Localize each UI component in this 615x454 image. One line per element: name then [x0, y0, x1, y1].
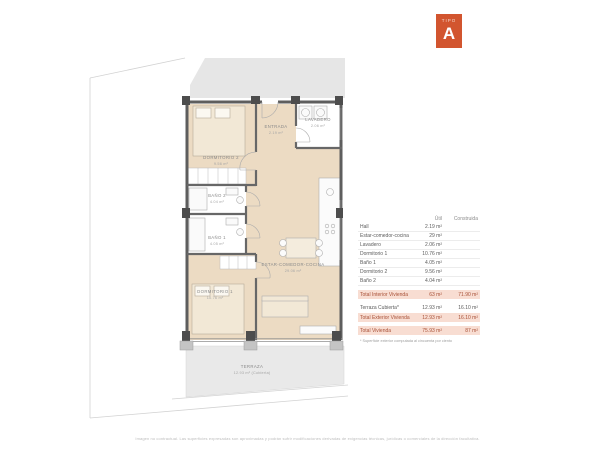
total-label: Total Exterior Vivienda — [360, 315, 412, 321]
total-construida: 71.90 m² — [442, 292, 478, 298]
row-util: 2.19 m² — [412, 224, 442, 230]
table-row: Estar-comedor-cocina 29 m² — [358, 232, 480, 241]
label-entrada: ENTRADA — [265, 124, 288, 129]
page-canvas: TIPO A — [0, 0, 615, 454]
total-label: Total Vivienda — [360, 328, 412, 334]
row-util: 9.56 m² — [412, 269, 442, 275]
row-util: 2.06 m² — [412, 242, 442, 248]
row-label: Baño 2 — [360, 278, 412, 284]
neighbor-unit-mass — [190, 58, 345, 98]
areas-table-header: Útil Construida — [358, 214, 480, 223]
areas-table: Útil Construida Hall 2.19 m² Estar-comed… — [358, 214, 480, 343]
total-label: Total Interior Vivienda — [360, 292, 412, 298]
row-label: Dormitorio 2 — [360, 269, 412, 275]
row-label: Lavadero — [360, 242, 412, 248]
table-row: Dormitorio 2 9.56 m² — [358, 268, 480, 277]
area-bano-2: 4.04 m² — [210, 200, 225, 204]
label-bano-2: BAÑO 2 — [208, 193, 226, 198]
table-row: Baño 1 4.05 m² — [358, 259, 480, 268]
table-row: Baño 2 4.04 m² — [358, 277, 480, 286]
total-construida: 16.10 m² — [442, 315, 478, 321]
row-label: Dormitorio 1 — [360, 251, 412, 257]
area-bano-1: 4.05 m² — [210, 242, 225, 246]
area-estar-comedor-cocina: 29.06 m² — [285, 269, 302, 273]
total-construida: 87 m² — [442, 328, 478, 334]
row-util: 4.04 m² — [412, 278, 442, 284]
table-footnote: * Superficie exterior computada al cincu… — [358, 339, 480, 343]
area-lavadero: 2.06 m² — [311, 124, 326, 128]
label-terraza: TERRAZA — [241, 364, 264, 369]
floor-plan: DORMITORIO 2 9.56 m² ENTRADA 2.19 m² LAV… — [0, 0, 615, 454]
total-label: Terraza Cubierta* — [360, 305, 412, 311]
row-util: 10.76 m² — [412, 251, 442, 257]
table-row: Hall 2.19 m² — [358, 223, 480, 232]
label-dormitorio-1: DORMITORIO 1 — [197, 289, 233, 294]
total-util: 75.93 m² — [412, 328, 442, 334]
total-util: 12.93 m² — [412, 305, 442, 311]
label-bano-1: BAÑO 1 — [208, 235, 226, 240]
total-util: 12.93 m² — [412, 315, 442, 321]
label-lavadero: LAVADERO — [305, 117, 331, 122]
terraza-cubierta-row: Terraza Cubierta* 12.93 m² 16.10 m² — [358, 303, 480, 312]
row-util: 4.05 m² — [412, 260, 442, 266]
row-label: Hall — [360, 224, 412, 230]
area-entrada: 2.19 m² — [269, 131, 284, 135]
area-dormitorio-1: 10.76 m² — [207, 296, 224, 300]
header-construida: Construida — [442, 216, 478, 222]
area-terraza: 12.93 m² (Cubierta) — [234, 371, 271, 375]
total-exterior-row: Total Exterior Vivienda 12.93 m² 16.10 m… — [358, 313, 480, 322]
total-construida: 16.10 m² — [442, 305, 478, 311]
row-label: Baño 1 — [360, 260, 412, 266]
table-row: Dormitorio 1 10.76 m² — [358, 250, 480, 259]
area-dormitorio-2: 9.56 m² — [214, 162, 229, 166]
row-label: Estar-comedor-cocina — [360, 233, 412, 239]
label-dormitorio-2: DORMITORIO 2 — [203, 155, 239, 160]
legal-disclaimer: Imagen no contractual. Las superficies e… — [0, 436, 615, 441]
total-vivienda-row: Total Vivienda 75.93 m² 87 m² — [358, 326, 480, 335]
table-row: Lavadero 2.06 m² — [358, 241, 480, 250]
row-util: 29 m² — [412, 233, 442, 239]
total-util: 63 m² — [412, 292, 442, 298]
header-util: Útil — [412, 216, 442, 222]
label-estar-comedor-cocina: ESTAR-COMEDOR-COCINA — [261, 262, 324, 267]
total-interior-row: Total Interior Vivienda 63 m² 71.90 m² — [358, 290, 480, 299]
